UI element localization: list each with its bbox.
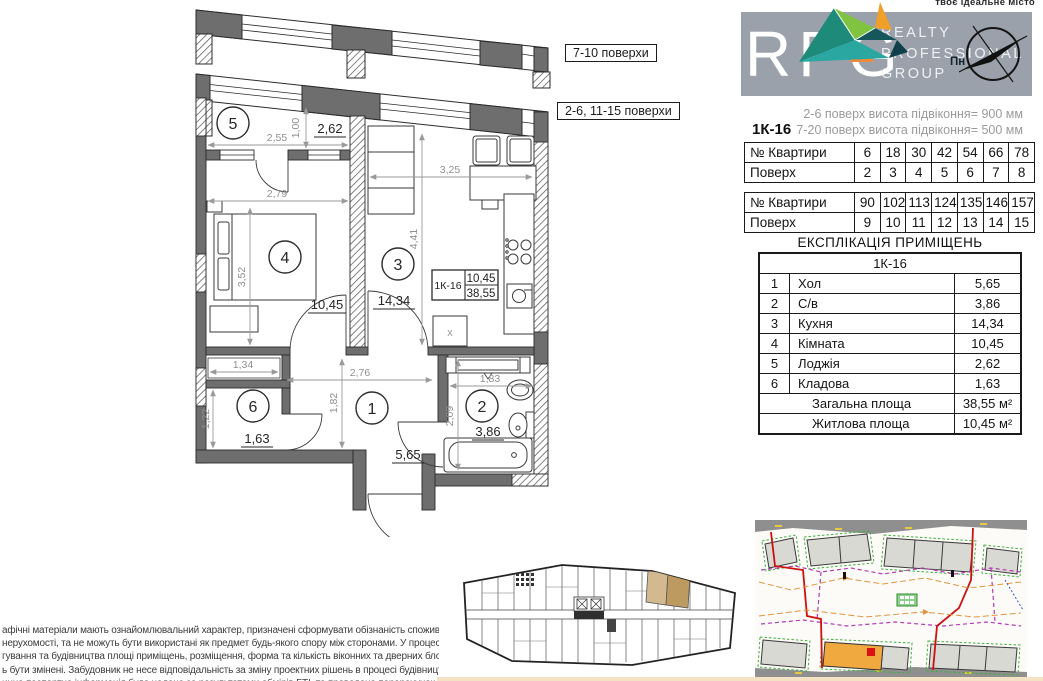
map-building	[761, 640, 807, 668]
dim-bath-width: 1,83	[480, 373, 501, 385]
explication-unit-header: 1К-16	[759, 253, 1021, 274]
table-row: 6 Кладова 1,63	[759, 374, 1021, 394]
page-edge-strip	[437, 677, 1043, 681]
row-num: 6	[759, 374, 790, 394]
dim-room-height: 3,52	[236, 267, 248, 288]
table-row: 2 С/в 3,86	[759, 294, 1021, 314]
washing-machine-mark: x	[447, 327, 453, 339]
sill-note-2: 7-20 поверх висота підвіконня= 500 мм	[790, 122, 1023, 138]
facade-strip-7-10	[196, 10, 550, 88]
map-building	[884, 538, 973, 572]
row-num: 1	[759, 274, 790, 294]
map-section-marker	[843, 572, 846, 579]
disclaimer-line: ь бути змінені. Забудовник не несе відпо…	[2, 664, 439, 677]
disclaimer-line: нерухомості, та не можуть бути використа…	[2, 637, 439, 650]
map-building	[881, 646, 909, 670]
unit-code: 1К-16	[752, 121, 791, 138]
cell: 135	[957, 193, 983, 213]
playground-icon	[897, 594, 917, 606]
disclaimer-line: инна паспортна інформація буде надана за…	[2, 677, 439, 681]
room-6-area: 1,63	[244, 431, 269, 446]
room-name: Кухня	[790, 314, 955, 334]
map-section-marker	[951, 570, 954, 577]
table-row: Загальна площа 38,55 м²	[759, 394, 1021, 414]
cell: 8	[1009, 163, 1035, 183]
room-5-number: 5	[229, 116, 238, 133]
explication-table: 1К-16 1 Хол 5,65 2 С/в 3,86 3 Кухня 14,3…	[758, 252, 1022, 435]
cell: 18	[880, 143, 906, 163]
room-area: 5,65	[955, 274, 1021, 294]
room-area: 1,63	[955, 374, 1021, 394]
total-area-value: 38,55 м²	[955, 394, 1021, 414]
cell: 11	[906, 213, 932, 233]
cell: 2	[855, 163, 881, 183]
room-4-number: 4	[281, 250, 290, 267]
map-building	[929, 644, 1017, 672]
floors-row-label: Поверх	[745, 163, 855, 183]
room-area: 2,62	[955, 354, 1021, 374]
row-num: 2	[759, 294, 790, 314]
living-area-label: Житлова площа	[759, 414, 955, 435]
table-row: № Квартири 90 102 113 124 135 146 157	[745, 193, 1035, 213]
room-6-number: 6	[249, 399, 258, 416]
table-row: Поверх 9 10 11 12 13 14 15	[745, 213, 1035, 233]
cell: 3	[880, 163, 906, 183]
cell: 14	[983, 213, 1009, 233]
dim-kitchen-width: 3,25	[440, 164, 461, 176]
room-area: 14,34	[955, 314, 1021, 334]
room-name: Кладова	[790, 374, 955, 394]
floor-range-label-main: 2-6, 11-15 поверхи	[557, 102, 680, 120]
apartments-row-label: № Квартири	[745, 143, 855, 163]
building-floor-overview	[452, 553, 744, 675]
room-name: Кімната	[790, 334, 955, 354]
cell: 30	[906, 143, 932, 163]
cell: 157	[1009, 193, 1035, 213]
unit-tag-code: 1К-16	[434, 280, 461, 292]
table-row: Поверх 2 3 4 5 6 7 8	[745, 163, 1035, 183]
cell: 4	[906, 163, 932, 183]
room-1-area: 5,65	[395, 447, 420, 462]
cell: 146	[983, 193, 1009, 213]
apartments-row-label: № Квартири	[745, 193, 855, 213]
cell: 12	[932, 213, 958, 233]
room-3-area: 14,34	[378, 293, 411, 308]
table-row: 1К-16	[759, 253, 1021, 274]
map-building	[765, 538, 797, 568]
cell: 15	[1009, 213, 1035, 233]
cell: 9	[855, 213, 881, 233]
dim-bath-height: 2,09	[444, 406, 456, 427]
room-area: 10,45	[955, 334, 1021, 354]
unit-tag-box: 1К-16 10,45 38,55	[432, 270, 498, 300]
row-num: 4	[759, 334, 790, 354]
table-row: 4 Кімната 10,45	[759, 334, 1021, 354]
room-2-area: 3,86	[475, 424, 500, 439]
table-row: 5 Лоджія 2,62	[759, 354, 1021, 374]
room-2-number: 2	[478, 399, 487, 416]
cell: 90	[855, 193, 881, 213]
table-row: 3 Кухня 14,34	[759, 314, 1021, 334]
disclaimer-line: афічні матеріали мають ознайомлювальний …	[2, 624, 439, 637]
room-4-area: 10,45	[311, 297, 344, 312]
cell: 10	[880, 213, 906, 233]
explication-title: ЕКСПЛІКАЦІЯ ПРИМІЩЕНЬ	[758, 235, 1022, 250]
row-num: 5	[759, 354, 790, 374]
brand-emblem-icon	[779, 0, 914, 66]
dim-closet-height: 1,22	[200, 409, 212, 430]
living-area-value: 10,45 м²	[955, 414, 1021, 435]
cell: 54	[957, 143, 983, 163]
total-area-label: Загальна площа	[759, 394, 955, 414]
brand-tagline: твоє ідеальне місто	[905, 0, 1035, 8]
row-num: 3	[759, 314, 790, 334]
disclaimer-text: афічні матеріали мають ознайомлювальний …	[2, 624, 439, 681]
disclaimer-line: гування та будівництва площі приміщень, …	[2, 650, 439, 663]
dim-balcony-width: 2,55	[267, 132, 288, 144]
apartments-table-1: № Квартири 6 18 30 42 54 66 78 Поверх 2 …	[744, 142, 1035, 183]
cell: 42	[932, 143, 958, 163]
cell: 124	[932, 193, 958, 213]
floors-row-label: Поверх	[745, 213, 855, 233]
dim-hall-height: 1,82	[328, 393, 340, 414]
floor-range-label-top: 7-10 поверхи	[565, 44, 657, 62]
apartments-table-2: № Квартири 90 102 113 124 135 146 157 По…	[744, 192, 1035, 233]
floor-plan-drawing: 2,55 1,00 2,79 3,52 3,25 4,41 1,34 1,22 …	[182, 2, 567, 537]
room-area: 3,86	[955, 294, 1021, 314]
table-row: Житлова площа 10,45 м²	[759, 414, 1021, 435]
table-row: 1 Хол 5,65	[759, 274, 1021, 294]
site-map	[755, 520, 1027, 679]
highlighted-apartment	[646, 571, 668, 605]
room-1-number: 1	[368, 401, 377, 418]
dim-hall-width: 2,76	[350, 367, 371, 379]
unit-tag-total-area: 38,55	[467, 288, 496, 300]
cell: 7	[983, 163, 1009, 183]
dim-kitchen-height: 4,41	[408, 229, 420, 250]
room-5-area: 2,62	[317, 121, 342, 136]
sill-note-1: 2-6 поверх висота підвіконня= 900 мм	[790, 106, 1023, 122]
cell: 113	[906, 193, 932, 213]
map-building	[985, 548, 1019, 574]
map-apartment-marker	[867, 648, 875, 656]
room-3-number: 3	[394, 257, 403, 274]
compass-icon	[955, 16, 1031, 92]
cell: 5	[932, 163, 958, 183]
table-row: № Квартири 6 18 30 42 54 66 78	[745, 143, 1035, 163]
cell: 6	[957, 163, 983, 183]
cell: 66	[983, 143, 1009, 163]
dim-room-width: 2,79	[267, 188, 288, 200]
room-name: Хол	[790, 274, 955, 294]
unit-tag-living-area: 10,45	[467, 273, 496, 285]
cell: 13	[957, 213, 983, 233]
room-name: С/в	[790, 294, 955, 314]
cell: 78	[1009, 143, 1035, 163]
brochure-page: 2,55 1,00 2,79 3,52 3,25 4,41 1,34 1,22 …	[0, 0, 1043, 681]
sill-height-notes: 2-6 поверх висота підвіконня= 900 мм 7-2…	[790, 106, 1023, 138]
dim-balcony-depth: 1,00	[290, 118, 302, 139]
dim-closet-width: 1,34	[233, 359, 254, 371]
room-name: Лоджія	[790, 354, 955, 374]
cell: 6	[855, 143, 881, 163]
cell: 102	[880, 193, 906, 213]
